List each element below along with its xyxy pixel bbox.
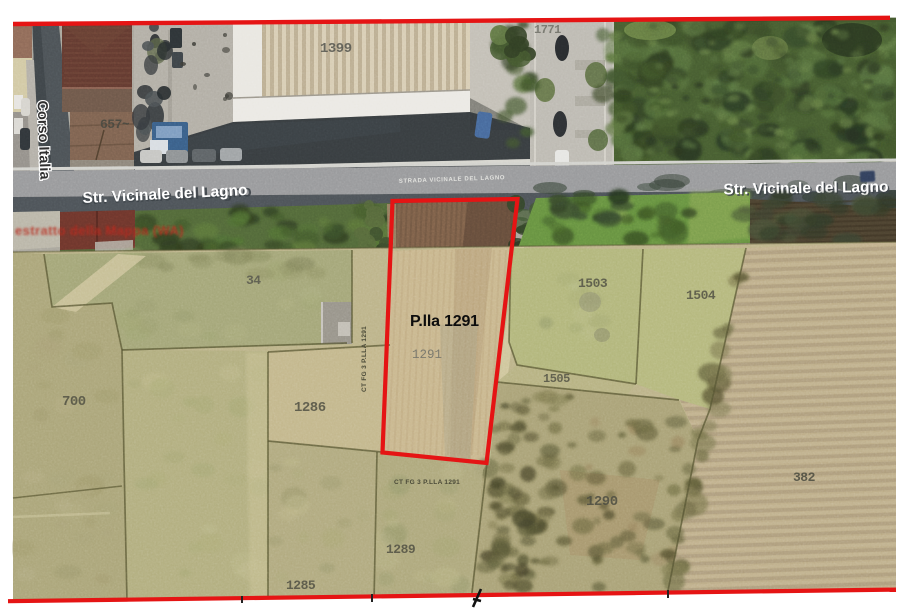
- svg-text:P.lla 1291: P.lla 1291: [410, 313, 479, 330]
- svg-text:CT FG 3 P.LLA 1291: CT FG 3 P.LLA 1291: [394, 479, 460, 486]
- svg-text:1291: 1291: [412, 348, 442, 362]
- svg-text:CT FG 3 P.LLA 1291: CT FG 3 P.LLA 1291: [361, 326, 368, 392]
